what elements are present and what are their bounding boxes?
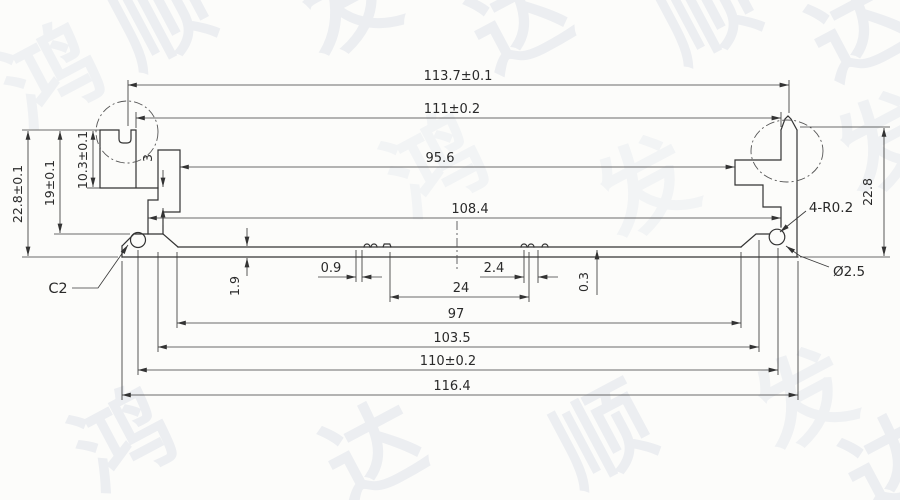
screw-hole-right: [769, 229, 785, 245]
screw-hole-left: [131, 233, 146, 248]
section-drawing: 113.7±0.1 111±0.2 95.6 108.4 0.9 2.4: [0, 0, 900, 500]
dim-left-total-value: 22.8±0.1: [10, 165, 25, 223]
dim-left-boss-value: 10.3±0.1: [75, 131, 90, 189]
dim-right-total: 22.8: [800, 127, 890, 257]
dim-wall-clear: 108.4: [148, 202, 781, 218]
dim-groove-left: 0.9: [318, 250, 382, 282]
callout-corner-radius-label: 4-R0.2: [809, 200, 853, 216]
dim-wall-clear-value: 108.4: [451, 202, 488, 217]
drawing-sheet: 顺 发 达 顺 达 鸿 发 鸿 发 鸿 达 顺 发 达: [0, 0, 900, 500]
dim-rib-span-value: 24: [453, 281, 470, 296]
dim-plate-thickness: 1.9: [227, 228, 247, 296]
dim-left-total: 22.8±0.1: [10, 130, 118, 257]
callout-chamfer: C2: [48, 245, 128, 297]
dim-top-clear: 95.6: [180, 151, 735, 167]
callout-hole-diameter-label: Ø2.5: [833, 264, 865, 280]
callout-corner-radius: 4-R0.2: [780, 200, 853, 232]
detail-circle-left: [96, 101, 158, 163]
dim-left-boss: 10.3±0.1: [75, 131, 100, 189]
dim-right-total-value: 22.8: [860, 178, 875, 206]
dim-top-inner: 111±0.2: [136, 102, 781, 128]
dim-groove-right: 2.4: [480, 250, 558, 283]
callout-chamfer-label: C2: [48, 281, 67, 297]
detail-circle-right: [751, 120, 823, 182]
dim-rib-height-value: 0.3: [576, 272, 591, 292]
dim-top-inner-value: 111±0.2: [424, 102, 480, 117]
dim-top-clear-value: 95.6: [426, 151, 455, 166]
dim-bottom-flat-value: 97: [448, 307, 465, 322]
profile-outline: [100, 116, 798, 257]
dim-bottom-overall-value: 116.4: [433, 379, 470, 394]
dim-plate-thickness-value: 1.9: [227, 276, 242, 296]
dim-slot-width: 3: [140, 154, 163, 225]
dim-groove-left-value: 0.9: [321, 261, 342, 276]
dim-top-overall: 113.7±0.1: [128, 69, 789, 126]
dim-top-overall-value: 113.7±0.1: [424, 69, 493, 84]
dim-groove-right-value: 2.4: [484, 261, 505, 276]
dim-bottom-holes-value: 110±0.2: [420, 354, 476, 369]
dim-slot-width-value: 3: [140, 154, 155, 162]
dim-bottom-step-value: 103.5: [433, 331, 470, 346]
dim-left-mid-value: 19±0.1: [42, 160, 57, 206]
